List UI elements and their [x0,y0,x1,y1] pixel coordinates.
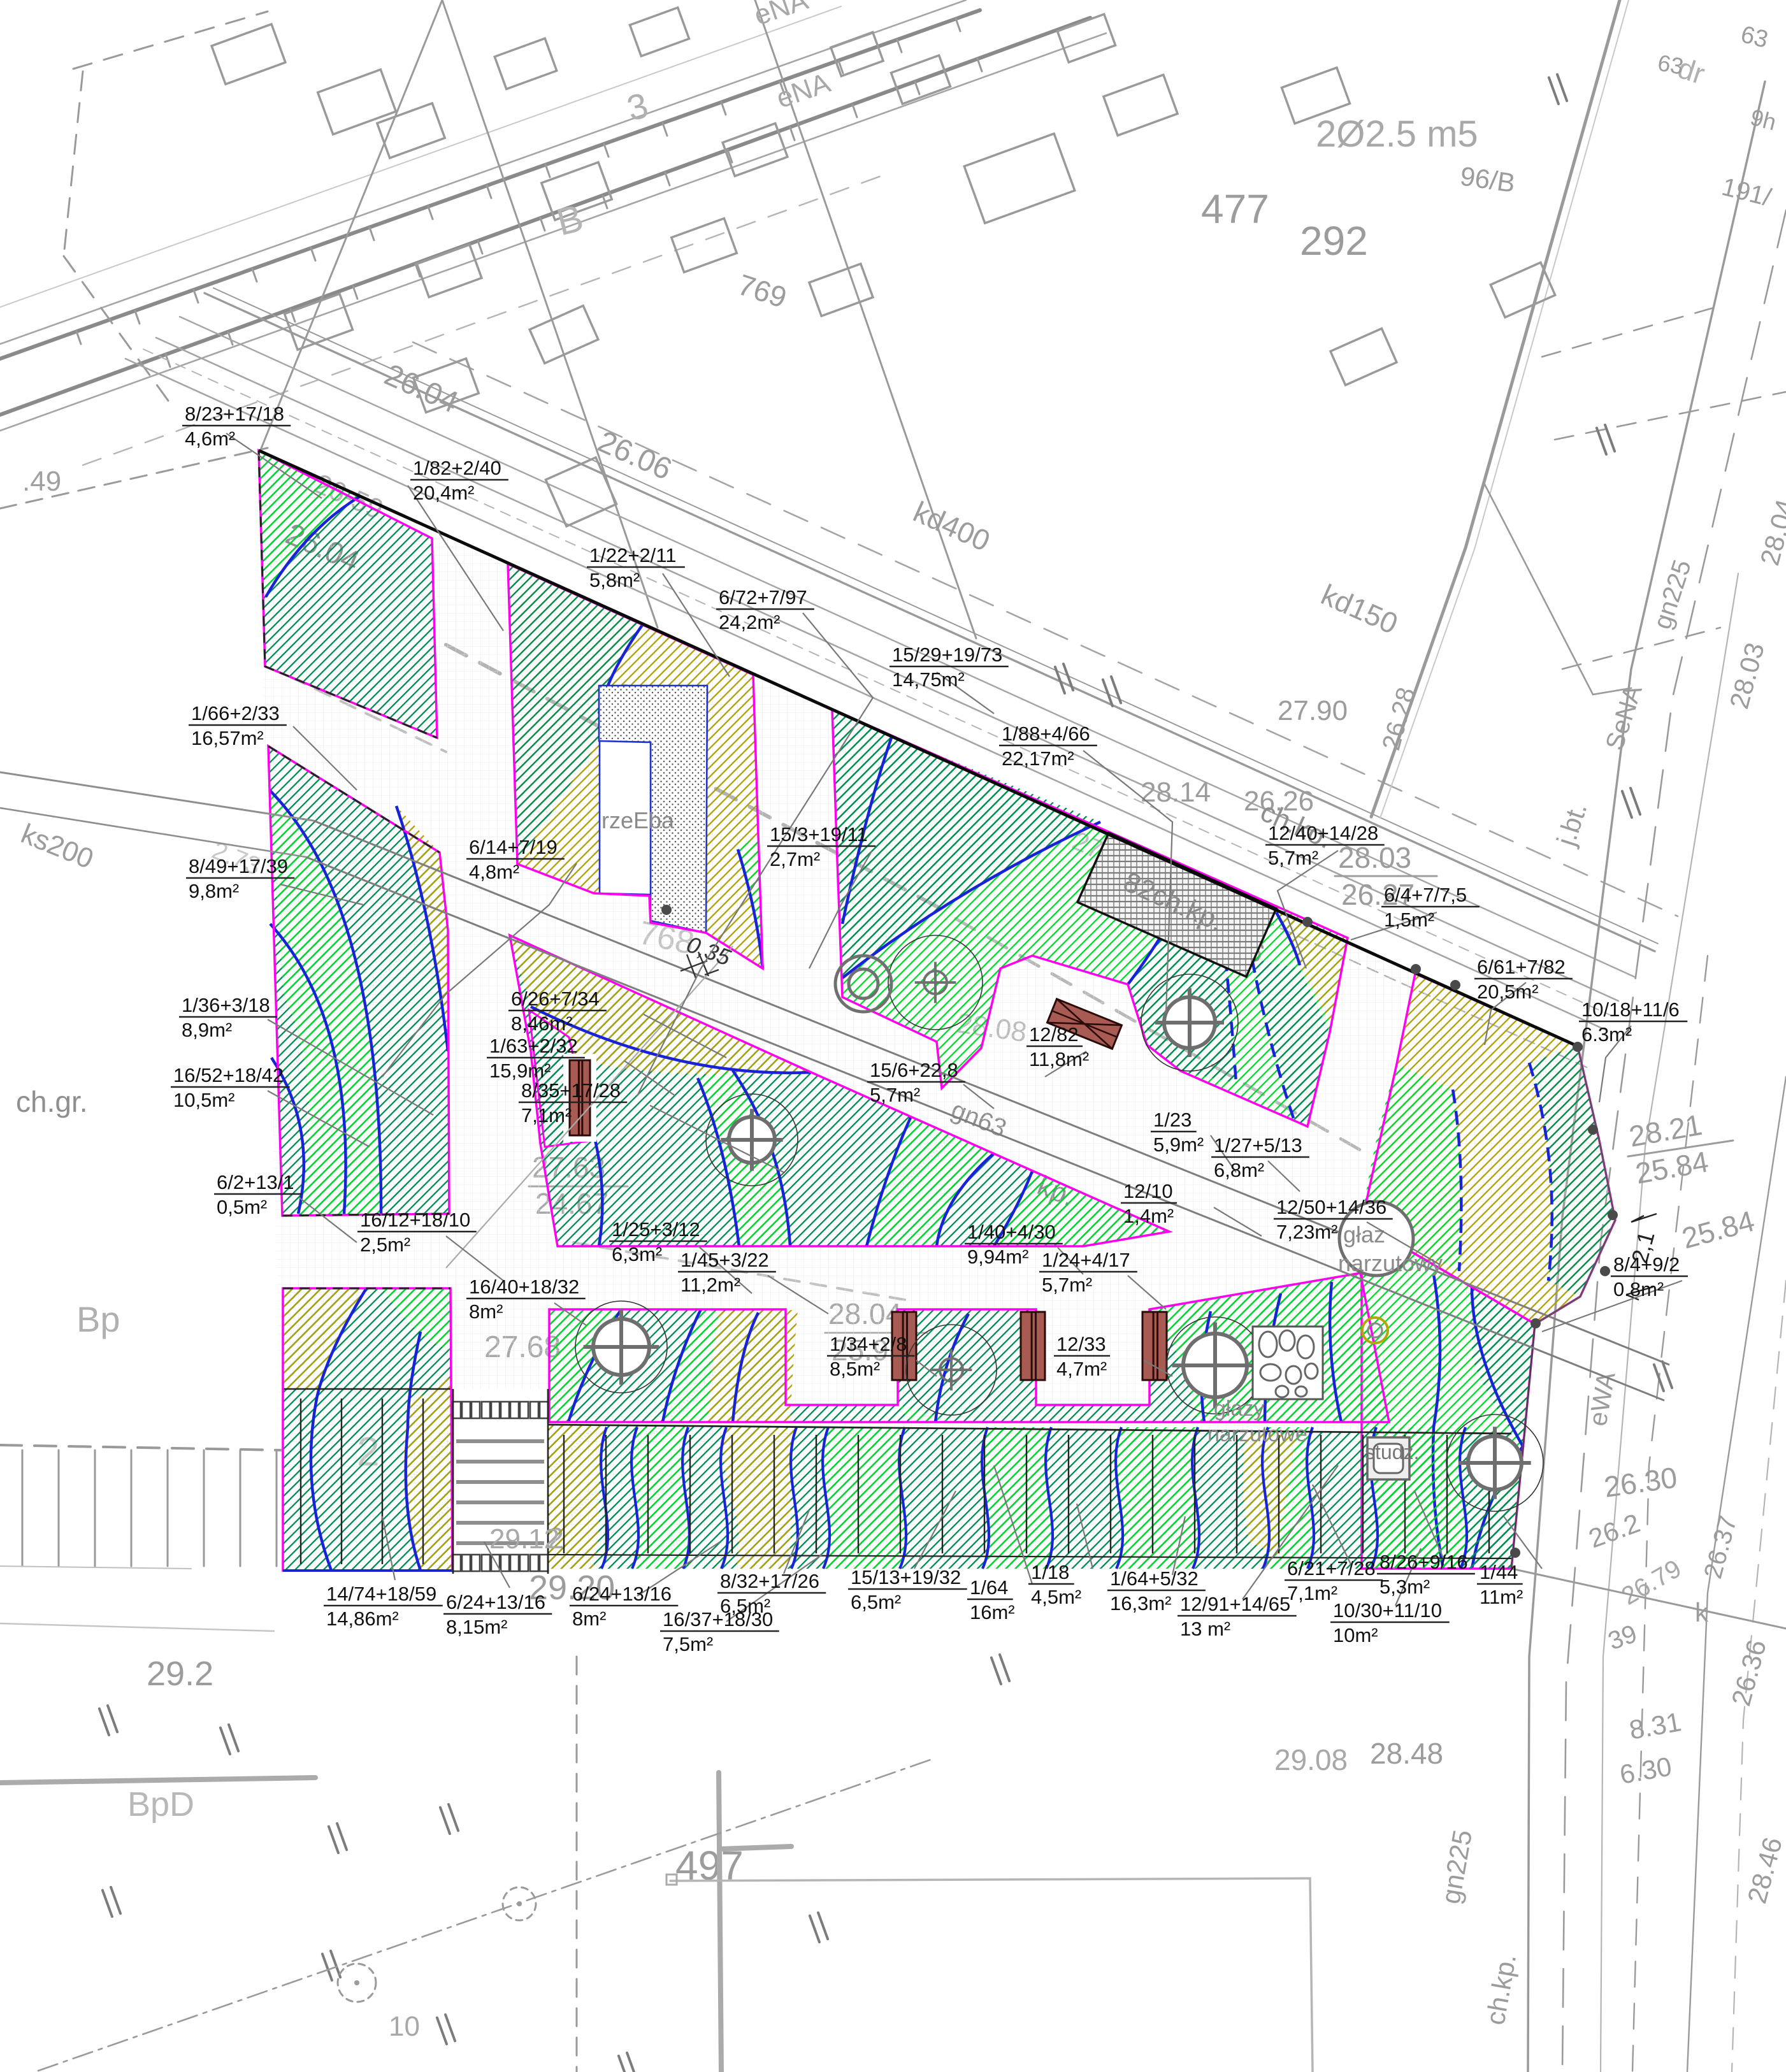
svg-text:4,7m²: 4,7m² [1056,1358,1107,1380]
svg-text:29.2: 29.2 [147,1655,213,1693]
svg-text:1/64+5/32: 1/64+5/32 [1110,1567,1199,1590]
svg-text:6/72+7/97: 6/72+7/97 [719,586,807,608]
svg-text:8/26+9/16: 8/26+9/16 [1379,1551,1468,1573]
svg-text:1,4m²: 1,4m² [1123,1205,1174,1227]
svg-text:6/4+7/7,5: 6/4+7/7,5 [1384,884,1467,906]
svg-text:8/32+17/26: 8/32+17/26 [720,1570,819,1592]
svg-text:15/13+19/32: 15/13+19/32 [851,1566,961,1588]
svg-text:1,5m²: 1,5m² [1384,909,1434,931]
svg-text:ch.gr.: ch.gr. [16,1085,88,1118]
svg-text:6.3m²: 6.3m² [1581,1023,1632,1046]
svg-text:11,8m²: 11,8m² [1029,1048,1089,1070]
svg-text:1/66+2/33: 1/66+2/33 [191,702,280,724]
svg-text:292: 292 [1300,218,1368,264]
svg-text:10: 10 [389,2011,420,2042]
svg-text:8,46m²: 8,46m² [511,1012,572,1035]
svg-text:6,3m²: 6,3m² [612,1243,662,1265]
svg-text:14,86m²: 14,86m² [326,1608,399,1630]
svg-text:1/27+5/13: 1/27+5/13 [1214,1134,1302,1156]
svg-text:8,5m²: 8,5m² [830,1358,880,1380]
svg-text:8,9m²: 8,9m² [182,1019,232,1041]
svg-text:2,5m²: 2,5m² [360,1234,410,1256]
svg-text:8/35+17/28: 8/35+17/28 [521,1079,621,1102]
svg-text:4,8m²: 4,8m² [469,861,519,883]
svg-text:1/36+3/18: 1/36+3/18 [182,994,270,1016]
svg-text:1/64: 1/64 [970,1576,1008,1599]
svg-text:głazy: głazy [1214,1397,1264,1421]
svg-text:12/91+14/65: 12/91+14/65 [1180,1593,1290,1615]
svg-text:14,75m²: 14,75m² [892,668,965,691]
svg-text:1/40+4/30: 1/40+4/30 [967,1221,1056,1243]
svg-text:głaz: głaz [1343,1221,1385,1248]
svg-text:6,8m²: 6,8m² [1214,1159,1264,1181]
svg-text:29.08: 29.08 [1274,1743,1348,1776]
svg-text:6/21+7/28: 6/21+7/28 [1287,1557,1376,1579]
svg-text:Bp: Bp [76,1299,120,1339]
svg-text:8/49+17/39: 8/49+17/39 [189,855,288,877]
svg-text:1/22+2/11: 1/22+2/11 [589,544,676,566]
svg-text:6/26+7/34: 6/26+7/34 [511,988,600,1010]
svg-text:7,5m²: 7,5m² [663,1633,713,1655]
svg-text:6/24+13/16: 6/24+13/16 [446,1591,545,1613]
svg-text:1/45+3/22: 1/45+3/22 [681,1249,769,1271]
svg-text:24,2m²: 24,2m² [719,611,780,633]
svg-text:studz.: studz. [1365,1441,1419,1464]
svg-text:1/63+2/32: 1/63+2/32 [489,1035,578,1057]
svg-text:16/40+18/32: 16/40+18/32 [469,1276,579,1298]
svg-text:6,5m²: 6,5m² [851,1591,901,1613]
svg-text:28.03: 28.03 [1338,841,1411,874]
svg-text:1/24+4/17: 1/24+4/17 [1042,1249,1130,1271]
svg-text:rzeEba: rzeEba [601,807,675,833]
svg-text:1/25+3/12: 1/25+3/12 [612,1218,700,1241]
svg-text:4,6m²: 4,6m² [185,428,235,450]
svg-text:1/88+4/66: 1/88+4/66 [1002,723,1090,745]
svg-text:16m²: 16m² [970,1601,1015,1623]
svg-text:15/3+19/11: 15/3+19/11 [770,823,868,845]
svg-text:12/50+14/36: 12/50+14/36 [1276,1196,1386,1218]
svg-text:1/82+2/40: 1/82+2/40 [413,457,501,479]
svg-text:1/34+2/8: 1/34+2/8 [830,1333,907,1355]
svg-text:10/18+11/6: 10/18+11/6 [1581,998,1680,1021]
svg-text:10m²: 10m² [1333,1624,1378,1646]
svg-text:2,7m²: 2,7m² [770,848,820,870]
svg-text:5,7m²: 5,7m² [870,1084,920,1106]
svg-text:9,94m²: 9,94m² [967,1246,1028,1268]
svg-text:narzutowe: narzutowe [1207,1422,1307,1446]
svg-text:8/23+17/18: 8/23+17/18 [185,403,284,425]
svg-text:29.12: 29.12 [489,1523,559,1555]
svg-text:narzutowy: narzutowy [1338,1250,1443,1276]
svg-text:20,4m²: 20,4m² [413,482,474,504]
svg-text:.49: .49 [22,466,61,497]
svg-text:7,1m²: 7,1m² [1287,1582,1337,1604]
svg-text:6,5m²: 6,5m² [720,1595,770,1617]
svg-text:15,9m²: 15,9m² [489,1060,551,1082]
svg-text:1/23: 1/23 [1153,1109,1192,1131]
svg-text:15/6+22,8: 15/6+22,8 [870,1059,958,1081]
svg-text:7,23m²: 7,23m² [1276,1221,1337,1243]
svg-text:5,7m²: 5,7m² [1042,1274,1092,1296]
svg-text:20,5m²: 20,5m² [1477,981,1538,1003]
svg-text:9,8m²: 9,8m² [189,880,239,902]
svg-text:15/29+19/73: 15/29+19/73 [892,644,1002,666]
svg-text:5,7m²: 5,7m² [1268,847,1318,869]
svg-text:8,15m²: 8,15m² [446,1616,507,1638]
svg-text:k: k [1695,1597,1709,1627]
svg-text:16/12+18/10: 16/12+18/10 [360,1209,470,1231]
svg-text:28.48: 28.48 [1370,1737,1443,1770]
svg-text:28.14: 28.14 [1141,777,1211,808]
svg-text:0,5m²: 0,5m² [217,1196,267,1218]
svg-text:BpD: BpD [127,1785,194,1824]
svg-text:6/14+7/19: 6/14+7/19 [469,836,558,858]
svg-text:6/24+13/16: 6/24+13/16 [572,1583,672,1605]
svg-text:4,5m²: 4,5m² [1031,1586,1081,1608]
svg-text:5,3m²: 5,3m² [1379,1576,1430,1598]
svg-text:0.8m²: 0.8m² [1613,1278,1664,1300]
svg-text:8m²: 8m² [572,1608,606,1630]
svg-text:1/18: 1/18 [1031,1561,1069,1583]
svg-text:10,5m²: 10,5m² [173,1089,234,1111]
svg-text:12/82: 12/82 [1029,1023,1079,1046]
svg-text:16,57m²: 16,57m² [191,727,264,749]
svg-text:1/44: 1/44 [1480,1561,1518,1583]
svg-text:16/52+18/42: 16/52+18/42 [173,1064,284,1086]
svg-text:5,8m²: 5,8m² [589,569,640,591]
svg-text:12/40+14/28: 12/40+14/28 [1268,822,1378,844]
svg-text:8/4+9/2: 8/4+9/2 [1613,1253,1680,1276]
svg-text:12/10: 12/10 [1123,1180,1173,1202]
svg-text:11m²: 11m² [1480,1586,1523,1608]
svg-text:10/30+11/10: 10/30+11/10 [1333,1599,1442,1622]
svg-text:7,1m²: 7,1m² [521,1104,572,1126]
svg-text:6/61+7/82: 6/61+7/82 [1477,956,1566,978]
svg-text:14/74+18/59: 14/74+18/59 [326,1583,436,1605]
svg-text:8m²: 8m² [469,1300,503,1323]
svg-text:5,9m²: 5,9m² [1153,1133,1204,1156]
svg-text:22,17m²: 22,17m² [1002,747,1074,770]
svg-text:11,2m²: 11,2m² [681,1274,740,1296]
svg-text:63: 63 [1656,50,1686,80]
svg-text:477: 477 [1201,186,1269,232]
svg-text:2Ø2.5 m5: 2Ø2.5 m5 [1316,113,1478,155]
svg-text:12/33: 12/33 [1056,1333,1106,1355]
svg-text:16,3m²: 16,3m² [1110,1592,1171,1615]
svg-text:13 m²: 13 m² [1180,1618,1230,1640]
svg-text:27.90: 27.90 [1278,695,1348,726]
svg-text:6/2+13/1: 6/2+13/1 [217,1171,294,1193]
